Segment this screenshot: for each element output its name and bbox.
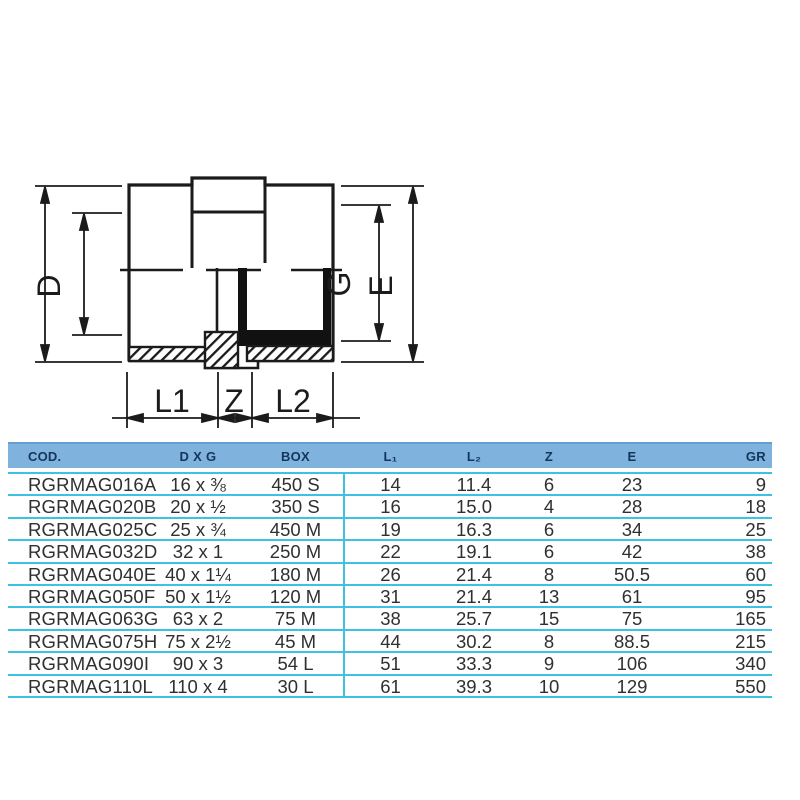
cell-l1: 38 bbox=[343, 608, 438, 630]
cell-l2: 39.3 bbox=[438, 676, 510, 698]
cell-gr: 18 bbox=[676, 496, 772, 518]
cell-gr: 340 bbox=[676, 653, 772, 675]
cell-box: 180 M bbox=[248, 564, 343, 586]
cell-gr: 38 bbox=[676, 541, 772, 563]
cell-dxg: 63 x 2 bbox=[148, 608, 248, 630]
cell-box: 120 M bbox=[248, 586, 343, 608]
cell-z: 10 bbox=[510, 676, 588, 698]
cell-z: 9 bbox=[510, 653, 588, 675]
cell-cod: RGRMAG016A bbox=[8, 474, 148, 496]
cell-dxg: 50 x 1½ bbox=[148, 586, 248, 608]
cell-l1: 22 bbox=[343, 541, 438, 563]
cell-dxg: 25 x ¾ bbox=[148, 519, 248, 541]
cell-e: 23 bbox=[588, 474, 676, 496]
cell-e: 75 bbox=[588, 608, 676, 630]
cell-l2: 21.4 bbox=[438, 586, 510, 608]
cell-dxg: 32 x 1 bbox=[148, 541, 248, 563]
cell-gr: 9 bbox=[676, 474, 772, 496]
cell-dxg: 90 x 3 bbox=[148, 653, 248, 675]
cell-box: 54 L bbox=[248, 653, 343, 675]
cell-z: 6 bbox=[510, 541, 588, 563]
cell-box: 75 M bbox=[248, 608, 343, 630]
header-e: E bbox=[588, 449, 676, 464]
cell-e: 61 bbox=[588, 586, 676, 608]
cell-box: 350 S bbox=[248, 496, 343, 518]
cell-box: 45 M bbox=[248, 631, 343, 653]
cell-cod: RGRMAG075H bbox=[8, 631, 148, 653]
table-row: RGRMAG020B20 x ½350 S1615.042818 bbox=[8, 496, 772, 518]
cell-l1: 19 bbox=[343, 519, 438, 541]
header-box: BOX bbox=[248, 449, 343, 464]
table-row: RGRMAG075H75 x 2½45 M4430.2888.5215 bbox=[8, 631, 772, 653]
dim-label-e-right: E bbox=[363, 275, 399, 296]
cell-z: 13 bbox=[510, 586, 588, 608]
cell-dxg: 16 x ⅜ bbox=[148, 474, 248, 496]
cell-l1: 31 bbox=[343, 586, 438, 608]
dim-label-l1: L1 bbox=[154, 383, 190, 419]
technical-drawing: E D G E L1 Z L2 bbox=[0, 0, 800, 450]
cell-z: 6 bbox=[510, 519, 588, 541]
cell-z: 6 bbox=[510, 474, 588, 496]
table-row: RGRMAG110L110 x 430 L6139.310129550 bbox=[8, 676, 772, 698]
table-row: RGRMAG040E40 x 1¼180 M2621.4850.560 bbox=[8, 564, 772, 586]
cell-l2: 11.4 bbox=[438, 474, 510, 496]
cell-l1: 14 bbox=[343, 474, 438, 496]
cell-dxg: 20 x ½ bbox=[148, 496, 248, 518]
cell-dxg: 75 x 2½ bbox=[148, 631, 248, 653]
catalog-page: E D G E L1 Z L2 COD. D X G BOX L₁ L₂ Z E… bbox=[0, 0, 800, 800]
cell-z: 8 bbox=[510, 631, 588, 653]
cell-e: 34 bbox=[588, 519, 676, 541]
dim-label-g: G bbox=[321, 272, 357, 297]
table-header-row: COD. D X G BOX L₁ L₂ Z E GR bbox=[8, 442, 772, 468]
table-row: RGRMAG016A16 x ⅜450 S1411.46239 bbox=[8, 474, 772, 496]
cell-l1: 61 bbox=[343, 676, 438, 698]
threaded-insert-section bbox=[238, 268, 331, 346]
cell-e: 28 bbox=[588, 496, 676, 518]
cell-l2: 25.7 bbox=[438, 608, 510, 630]
cell-cod: RGRMAG050F bbox=[8, 586, 148, 608]
column-divider bbox=[343, 472, 345, 698]
cell-gr: 95 bbox=[676, 586, 772, 608]
cell-e: 129 bbox=[588, 676, 676, 698]
cell-z: 4 bbox=[510, 496, 588, 518]
spec-table: COD. D X G BOX L₁ L₂ Z E GR RGRMAG016A16… bbox=[8, 442, 772, 698]
cell-cod: RGRMAG032D bbox=[8, 541, 148, 563]
cell-l2: 21.4 bbox=[438, 564, 510, 586]
header-l1: L₁ bbox=[343, 449, 438, 464]
cell-box: 450 S bbox=[248, 474, 343, 496]
cell-gr: 215 bbox=[676, 631, 772, 653]
cell-gr: 165 bbox=[676, 608, 772, 630]
cell-l2: 19.1 bbox=[438, 541, 510, 563]
cell-l2: 30.2 bbox=[438, 631, 510, 653]
table-row: RGRMAG050F50 x 1½120 M3121.4136195 bbox=[8, 586, 772, 608]
header-l2: L₂ bbox=[438, 449, 510, 464]
cell-e: 50.5 bbox=[588, 564, 676, 586]
header-gr: GR bbox=[676, 449, 772, 464]
dim-label-d: D bbox=[31, 274, 67, 297]
cell-l2: 15.0 bbox=[438, 496, 510, 518]
cell-l1: 51 bbox=[343, 653, 438, 675]
table-row: RGRMAG090I90 x 354 L5133.39106340 bbox=[8, 653, 772, 675]
cell-l2: 16.3 bbox=[438, 519, 510, 541]
cell-z: 8 bbox=[510, 564, 588, 586]
cell-gr: 25 bbox=[676, 519, 772, 541]
table-row: RGRMAG025C25 x ¾450 M1916.363425 bbox=[8, 519, 772, 541]
cell-l2: 33.3 bbox=[438, 653, 510, 675]
dim-label-z: Z bbox=[224, 383, 244, 419]
cell-e: 42 bbox=[588, 541, 676, 563]
cell-e: 88.5 bbox=[588, 631, 676, 653]
cell-gr: 550 bbox=[676, 676, 772, 698]
cell-box: 250 M bbox=[248, 541, 343, 563]
cell-l1: 26 bbox=[343, 564, 438, 586]
cell-e: 106 bbox=[588, 653, 676, 675]
header-z: Z bbox=[510, 449, 588, 464]
table-row: RGRMAG063G63 x 275 M3825.71575165 bbox=[8, 608, 772, 630]
dim-label-l2: L2 bbox=[275, 383, 311, 419]
cell-cod: RGRMAG090I bbox=[8, 653, 148, 675]
cell-cod: RGRMAG063G bbox=[8, 608, 148, 630]
cell-dxg: 110 x 4 bbox=[148, 676, 248, 698]
table-row: RGRMAG032D32 x 1250 M2219.164238 bbox=[8, 541, 772, 563]
header-dxg: D X G bbox=[148, 449, 248, 464]
cell-box: 450 M bbox=[248, 519, 343, 541]
table-body: RGRMAG016A16 x ⅜450 S1411.46239RGRMAG020… bbox=[8, 472, 772, 698]
cell-cod: RGRMAG040E bbox=[8, 564, 148, 586]
cell-l1: 16 bbox=[343, 496, 438, 518]
cell-box: 30 L bbox=[248, 676, 343, 698]
cell-cod: RGRMAG020B bbox=[8, 496, 148, 518]
cell-z: 15 bbox=[510, 608, 588, 630]
cell-dxg: 40 x 1¼ bbox=[148, 564, 248, 586]
header-cod: COD. bbox=[8, 449, 148, 464]
cell-cod: RGRMAG025C bbox=[8, 519, 148, 541]
cell-l1: 44 bbox=[343, 631, 438, 653]
cell-cod: RGRMAG110L bbox=[8, 676, 148, 698]
cell-gr: 60 bbox=[676, 564, 772, 586]
